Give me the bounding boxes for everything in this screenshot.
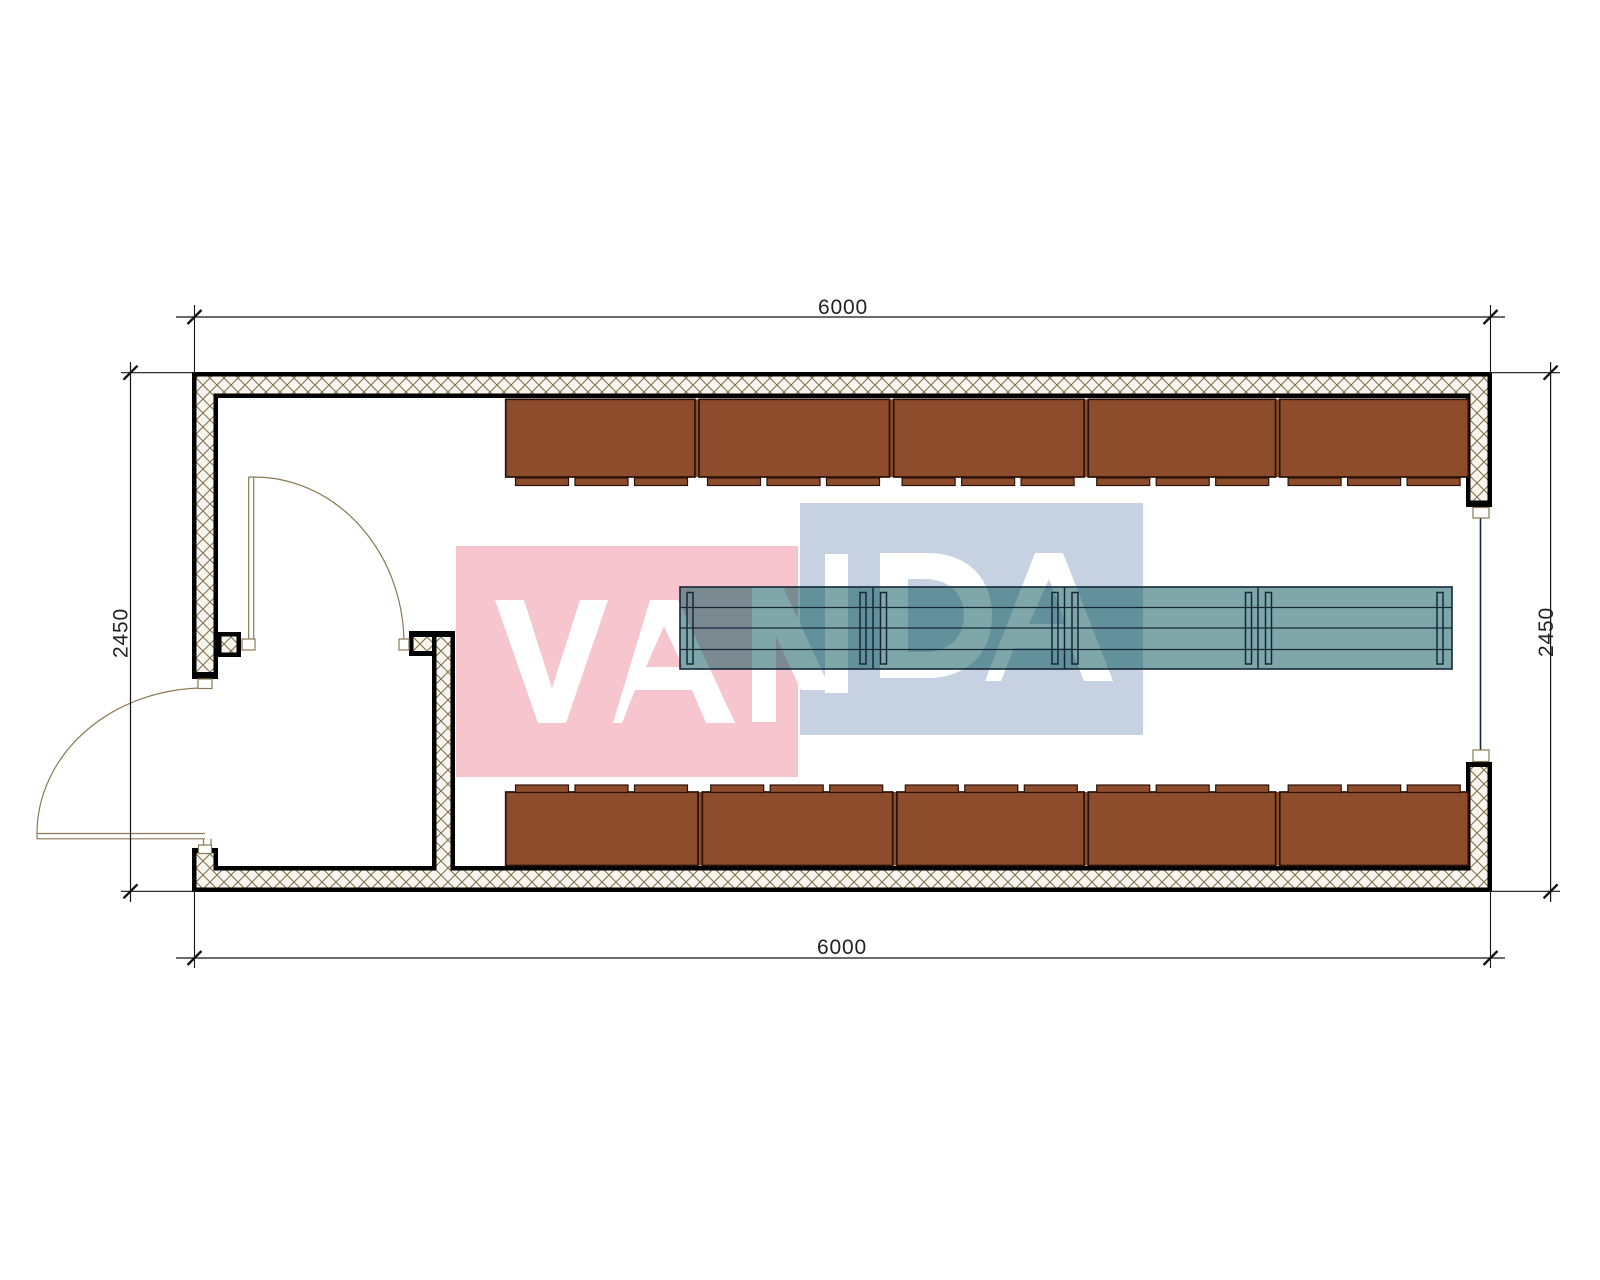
svg-text:6000: 6000 xyxy=(817,936,867,959)
svg-text:2450: 2450 xyxy=(110,608,133,658)
svg-text:2450: 2450 xyxy=(1535,607,1558,657)
svg-text:6000: 6000 xyxy=(818,296,868,319)
